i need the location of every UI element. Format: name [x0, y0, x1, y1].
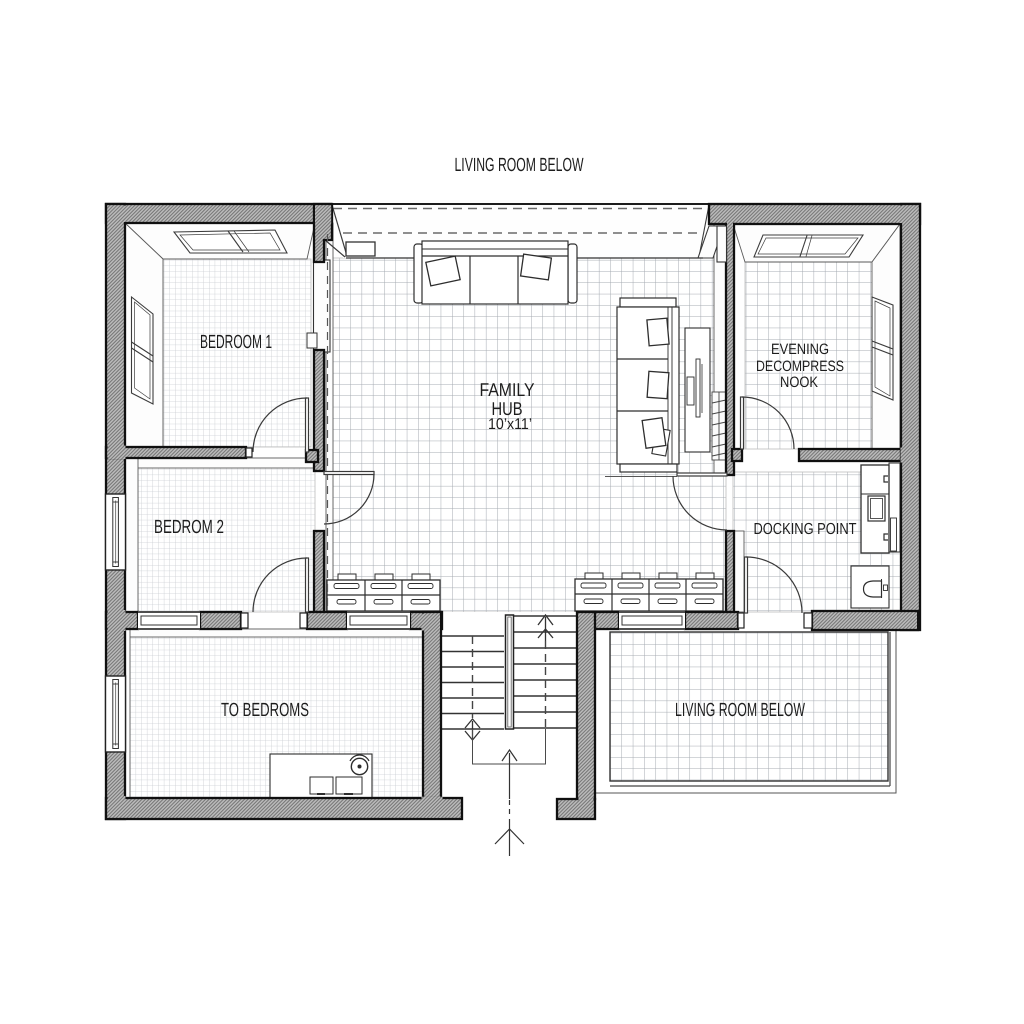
svg-text:EVENING: EVENING: [771, 341, 829, 358]
svg-text:BEDROOM 1: BEDROOM 1: [200, 332, 272, 353]
svg-text:FAMILY: FAMILY: [480, 379, 535, 400]
svg-text:LIVING ROOM BELOW: LIVING ROOM BELOW: [675, 700, 805, 721]
svg-text:NOOK: NOOK: [780, 374, 818, 391]
svg-text:DECOMPRESS: DECOMPRESS: [756, 358, 844, 375]
svg-text:LIVING ROOM BELOW: LIVING ROOM BELOW: [455, 155, 584, 176]
svg-text:BEDROM 2: BEDROM 2: [154, 517, 224, 538]
svg-text:10’x11’: 10’x11’: [488, 416, 532, 433]
svg-text:TO BEDROMS: TO BEDROMS: [221, 700, 309, 721]
svg-text:DOCKING POINT: DOCKING POINT: [754, 521, 857, 538]
